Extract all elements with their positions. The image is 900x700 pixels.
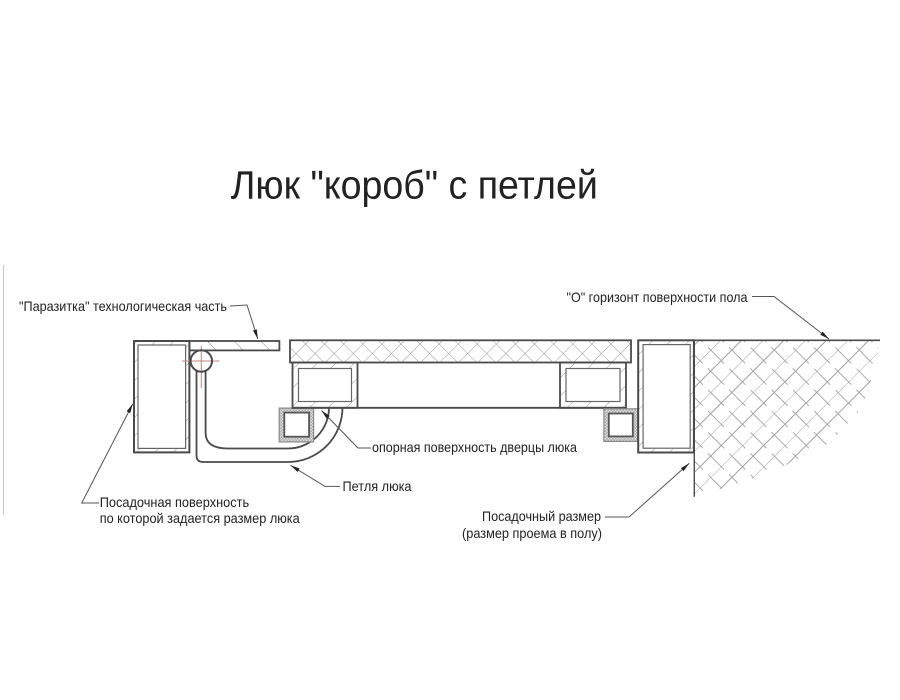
svg-text:"О" горизонт поверхности пола: "О" горизонт поверхности пола — [567, 289, 748, 305]
svg-text:Люк "короб" с петлей: Люк "короб" с петлей — [231, 164, 598, 208]
svg-text:"Паразитка" технологическая ча: "Паразитка" технологическая часть — [19, 298, 227, 314]
svg-text:Петля люка: Петля люка — [343, 478, 412, 494]
svg-text:опорная поверхность дверцы люк: опорная поверхность дверцы люка — [372, 439, 577, 455]
svg-text:по которой задается размер люк: по которой задается размер люка — [100, 510, 300, 526]
svg-text:(размер проема в полу): (размер проема в полу) — [462, 525, 602, 541]
svg-text:Посадочная поверхность: Посадочная поверхность — [100, 494, 250, 510]
svg-text:Посадочный размер: Посадочный размер — [482, 508, 601, 524]
